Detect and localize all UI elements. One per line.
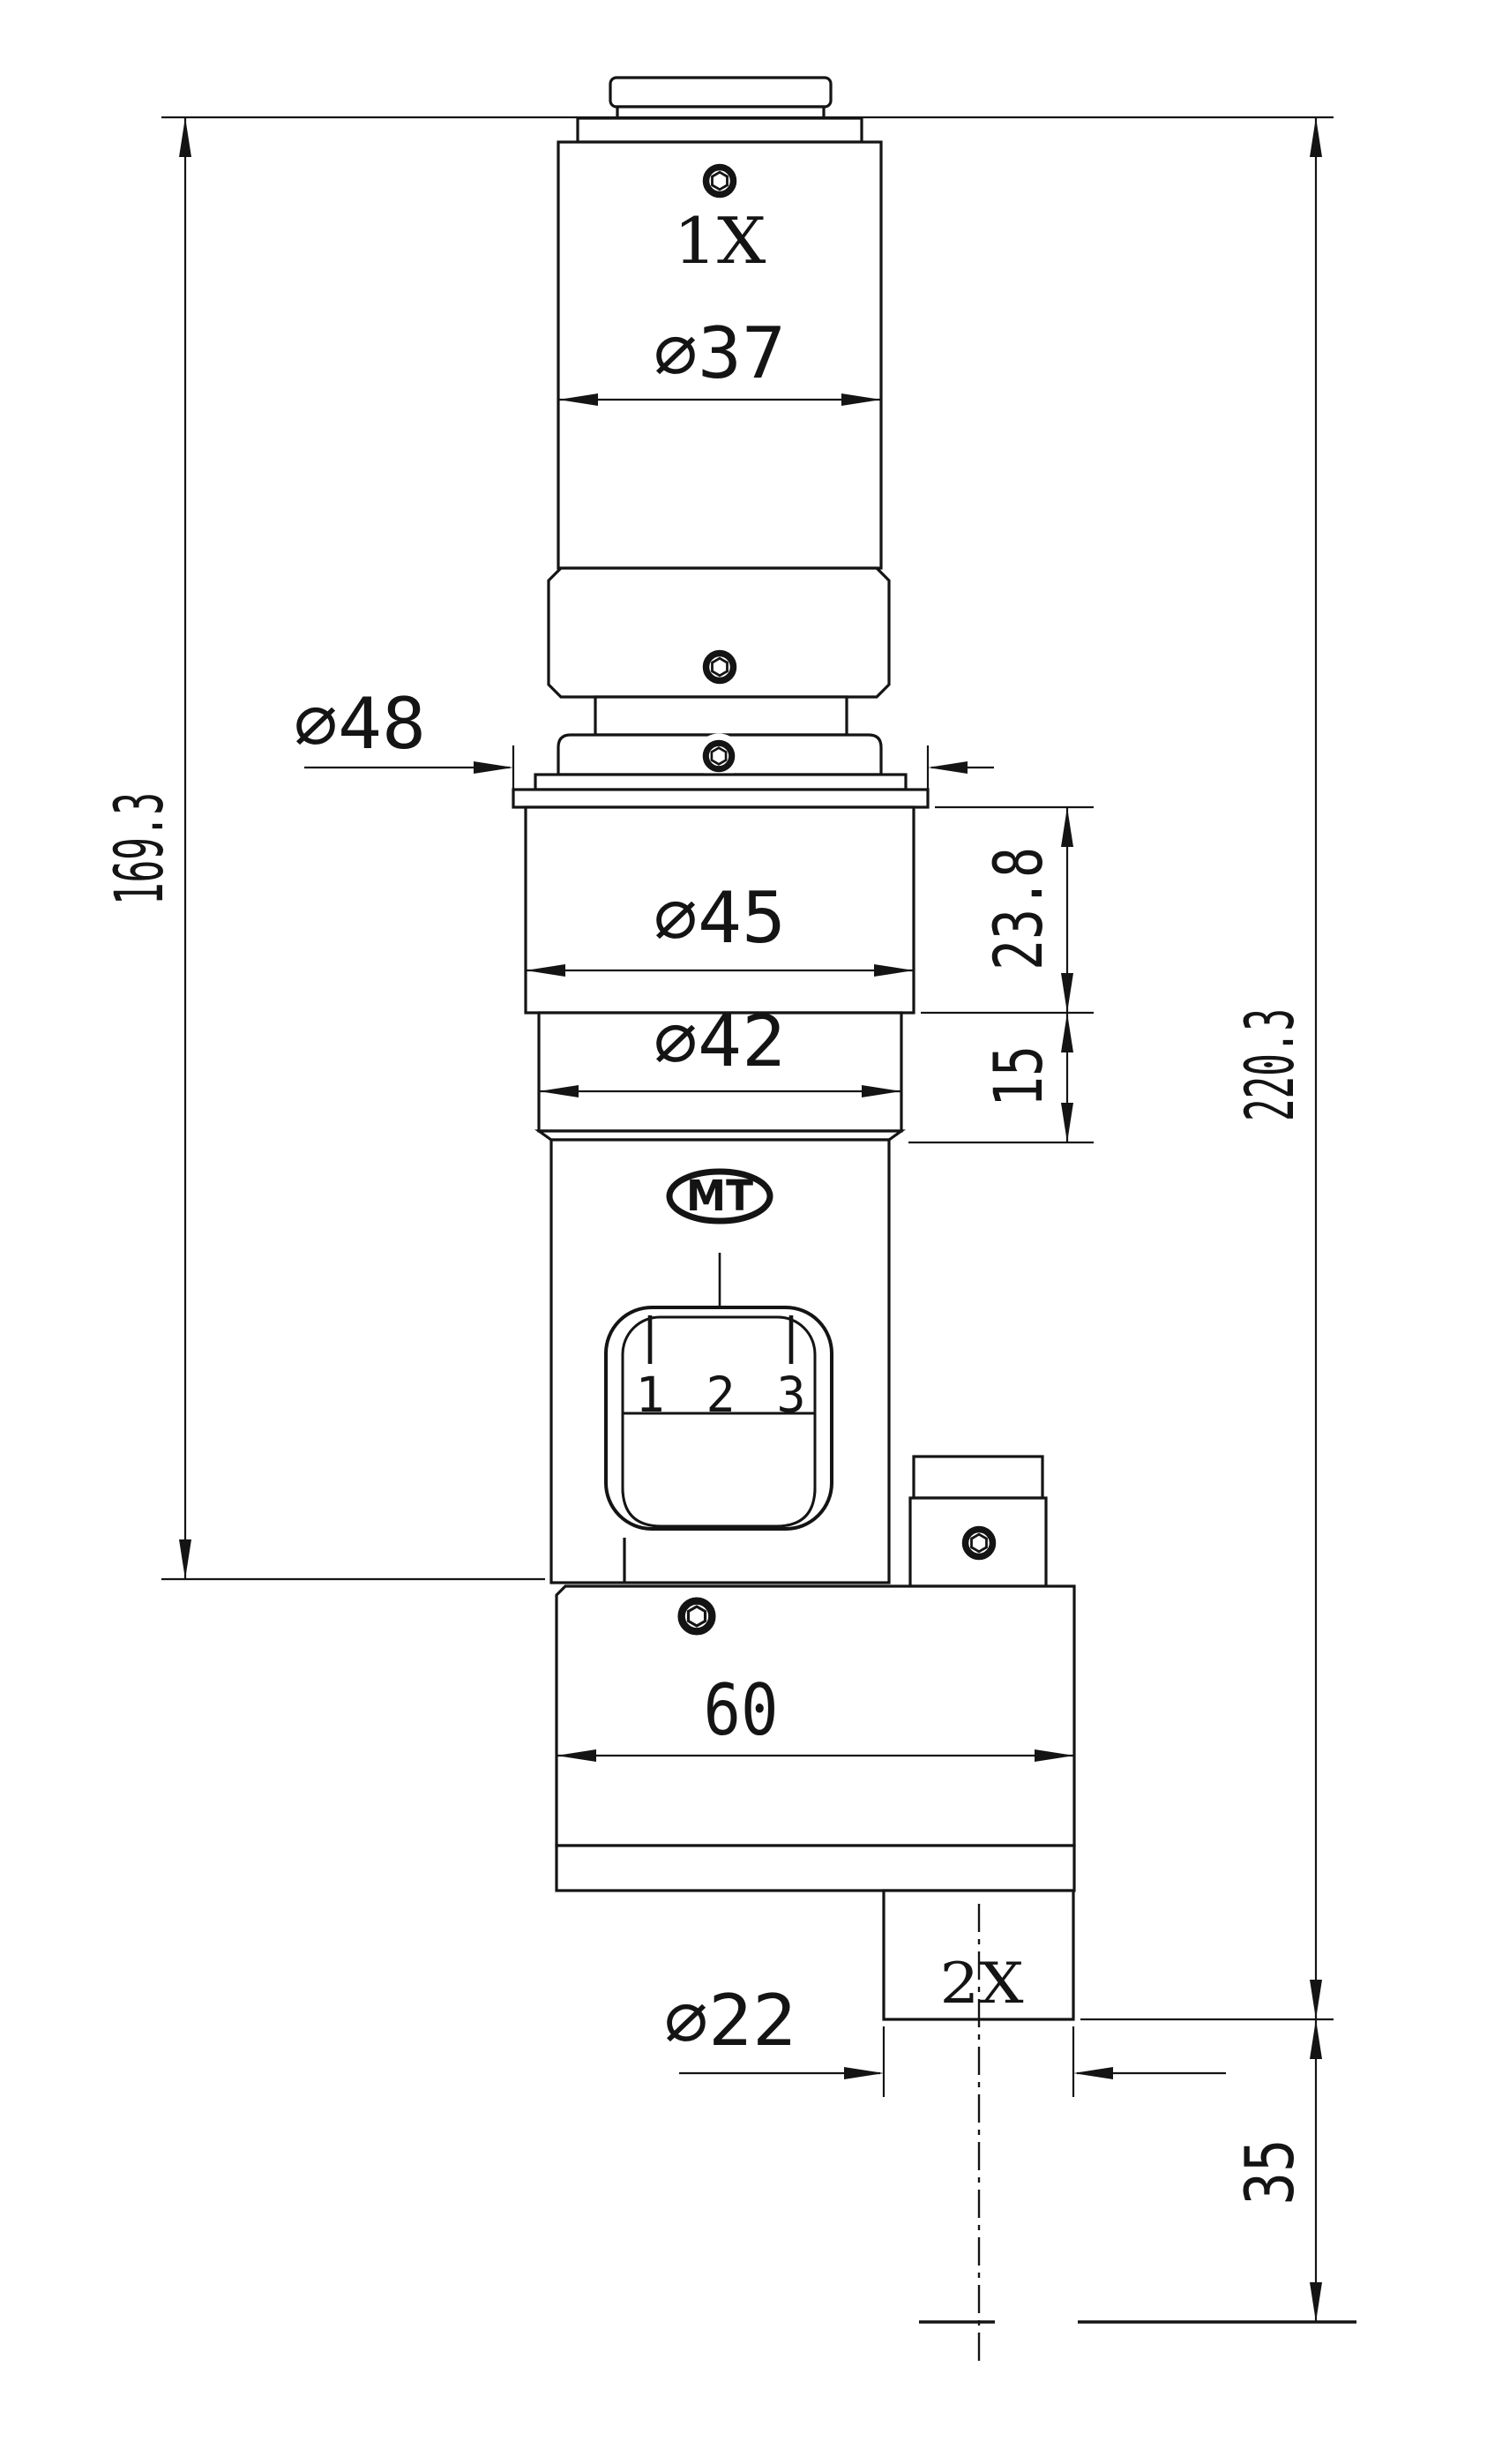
label-1x: 1X [674,204,766,278]
arrow-right-icon [474,761,513,774]
arrow-left-icon [928,761,968,774]
set-screw-icon [696,733,741,778]
dim-label-15: 15 [979,1045,1057,1107]
mount-flange [513,775,928,807]
dim-working-distance-35: 35 [919,2019,1356,2322]
arrow-down-icon [179,1539,191,1579]
side-port-block [910,1457,1046,1586]
body-sections [526,807,914,1140]
arrow-down-icon [1061,1103,1073,1142]
mt-logo-text: MT [686,1172,753,1221]
technical-drawing-canvas: MT 1 2 3 169.3 220.3 [0,0,1487,2464]
arrow-up-icon [1310,2019,1322,2059]
arrow-up-icon [1061,1013,1073,1052]
neck [595,697,847,735]
label-2x: 2X [940,1951,1024,2017]
lower-mount-block [557,1586,1074,1891]
dim-label-60: 60 [704,1669,779,1751]
side-port-cap [914,1457,1042,1498]
dim-label-dia45: ∅45 [654,877,786,959]
set-screw-icon [696,157,743,205]
flange-upper-plate [535,775,906,790]
flange-lower-plate-dia48 [513,790,928,807]
c-mount-cap [610,78,831,118]
dim-label-dia22: ∅22 [664,1980,796,2062]
neck-and-collar [558,697,881,779]
mount-base-plate [557,1846,1074,1891]
dim-right-238-15: 23.8 15 [908,807,1094,1142]
dim-overall-right-220: 220.3 [1080,117,1334,2019]
dim-label-35: 35 [1230,2139,1309,2206]
arrow-right-icon [844,2067,884,2079]
barrel-step [578,118,862,142]
set-screw-icon [696,643,743,691]
mount-block-60 [557,1586,1074,1846]
arrow-up-icon [1061,807,1073,847]
dim-label-169.3: 169.3 [100,792,178,905]
arrow-down-icon [1310,2282,1322,2322]
arrow-up-icon [1310,117,1322,157]
arrow-left-icon [1073,2067,1113,2079]
arrow-down-icon [1061,973,1073,1013]
dim-dia22: 2X ∅22 [664,1951,1226,2097]
knurl-window-hatch [623,1413,815,1526]
dim-label-23.8: 23.8 [979,847,1057,970]
set-screw-icon [670,1590,723,1643]
dim-label-220.3: 220.3 [1230,1008,1309,1121]
arrow-up-icon [179,117,191,157]
set-screw-icon [955,1519,1003,1567]
knurled-focus-ring [549,568,889,697]
cap-top-plate [610,78,831,107]
dim-label-dia37: ∅37 [654,312,786,394]
dim-label-dia48: ∅48 [294,683,426,765]
arrow-down-icon [1310,1980,1322,2019]
main-zoom-body: MT 1 2 3 [551,1140,889,1583]
dim-label-dia42: ∅42 [654,1000,786,1082]
